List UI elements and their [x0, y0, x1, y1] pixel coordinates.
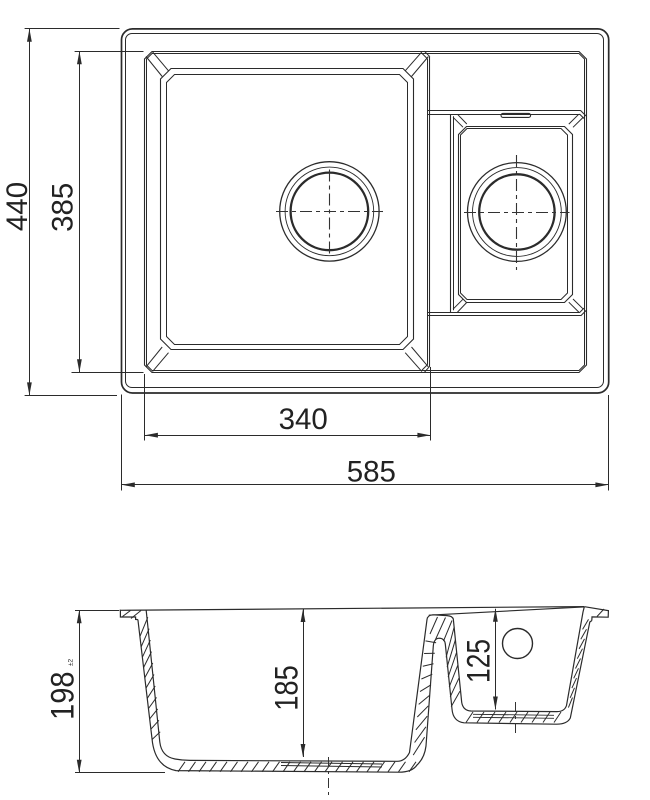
svg-text:340: 340: [279, 403, 328, 436]
svg-text:440: 440: [1, 182, 34, 231]
svg-text:185: 185: [269, 665, 305, 711]
svg-text:125: 125: [461, 639, 497, 683]
svg-text:198: 198: [44, 672, 81, 720]
svg-text:385: 385: [46, 183, 79, 232]
svg-text:±2: ±2: [68, 659, 75, 667]
svg-text:585: 585: [347, 455, 396, 488]
